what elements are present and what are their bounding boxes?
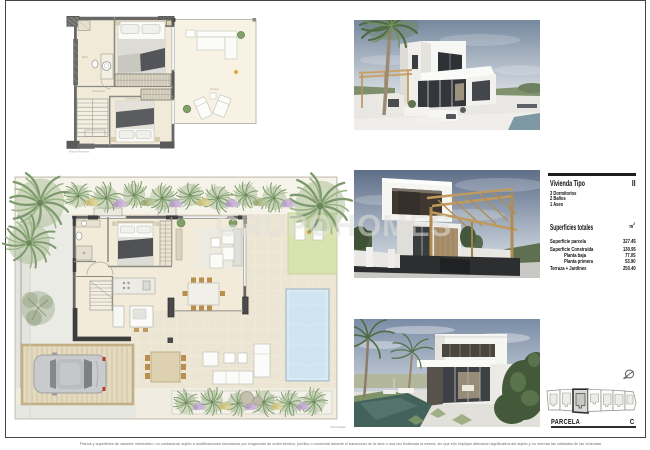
svg-text:Planta Primera: Planta Primera [69, 150, 89, 154]
svg-text:Planta Baja: Planta Baja [330, 425, 346, 429]
svg-text:Terraza: Terraza [210, 87, 219, 91]
svg-text:Baño: Baño [82, 55, 89, 59]
svg-text:Distribuidor: Distribuidor [92, 89, 105, 93]
svg-text:Dormitorio 2: Dormitorio 2 [125, 97, 140, 101]
